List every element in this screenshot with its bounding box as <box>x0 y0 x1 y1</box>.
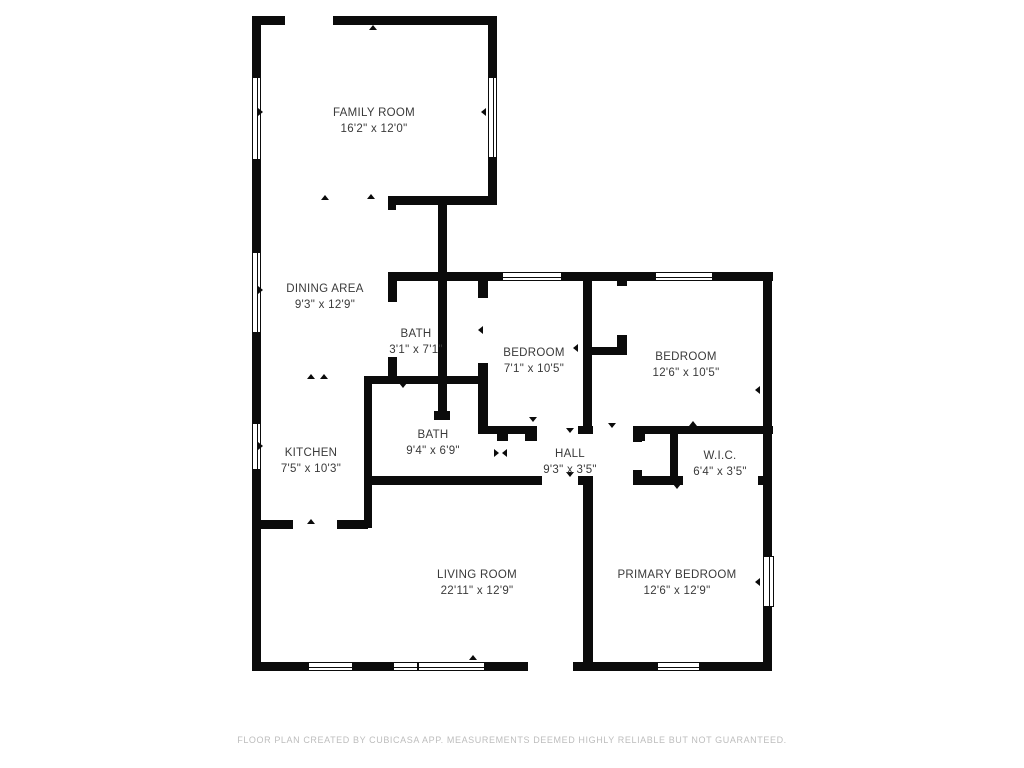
opening-marker-left <box>481 108 486 116</box>
window-pane-line <box>394 667 417 668</box>
window-pane-line <box>419 667 484 668</box>
room-name: W.I.C. <box>693 448 747 464</box>
wall-segment <box>388 196 396 210</box>
room-label: BEDROOM12'6" x 10'5" <box>653 349 720 381</box>
room-dimensions: 12'6" x 10'5" <box>653 365 720 381</box>
wall-segment <box>364 376 480 384</box>
window-symbol <box>418 662 485 671</box>
window-symbol <box>502 272 562 281</box>
opening-marker-down <box>399 383 407 388</box>
opening-marker-up <box>367 194 375 199</box>
opening-marker-left <box>583 588 588 596</box>
wall-segment <box>478 281 488 298</box>
wall-segment <box>633 426 773 434</box>
wall-segment <box>364 376 372 528</box>
wall-segment <box>388 281 397 302</box>
opening-marker-down <box>529 417 537 422</box>
wall-segment <box>252 333 261 423</box>
opening-marker-left <box>573 344 578 352</box>
wall-segment <box>617 335 627 347</box>
wall-segment <box>364 476 542 485</box>
wall-segment <box>763 272 772 556</box>
room-name: KITCHEN <box>281 445 341 461</box>
room-label: BATH9'4" x 6'9" <box>406 427 460 459</box>
room-dimensions: 22'11" x 12'9" <box>437 583 517 599</box>
wall-segment <box>497 434 508 441</box>
wall-segment <box>525 434 537 441</box>
room-label: LIVING ROOM22'11" x 12'9" <box>437 567 517 599</box>
window-pane-line <box>309 667 352 668</box>
wall-segment <box>478 363 488 434</box>
wall-segment <box>353 662 393 671</box>
wall-segment <box>485 662 528 671</box>
wall-segment <box>583 476 593 671</box>
room-name: BEDROOM <box>503 345 565 361</box>
window-symbol <box>252 77 261 160</box>
room-name: PRIMARY BEDROOM <box>617 567 736 583</box>
room-label: BATH3'1" x 7'1" <box>389 326 443 358</box>
room-label: HALL9'3" x 3'5" <box>543 446 597 478</box>
room-dimensions: 9'3" x 12'9" <box>286 297 363 313</box>
window-symbol <box>393 662 418 671</box>
room-dimensions: 7'1" x 10'5" <box>503 361 565 377</box>
wall-segment <box>583 276 592 434</box>
room-label: BEDROOM7'1" x 10'5" <box>503 345 565 377</box>
window-symbol <box>308 662 353 671</box>
opening-marker-down <box>608 423 616 428</box>
wall-segment <box>438 196 447 420</box>
opening-marker-up <box>469 655 477 660</box>
opening-marker-left <box>478 326 483 334</box>
opening-marker-right <box>258 108 263 116</box>
opening-marker-down <box>566 428 574 433</box>
opening-marker-up <box>307 374 315 379</box>
wall-segment <box>434 411 450 420</box>
room-dimensions: 16'2" x 12'0" <box>333 121 415 137</box>
wall-segment <box>488 158 497 205</box>
window-symbol <box>657 662 700 671</box>
opening-marker-up <box>320 374 328 379</box>
opening-marker-up <box>689 421 697 426</box>
opening-marker-left <box>755 386 760 394</box>
window-pane-line <box>769 557 770 606</box>
room-label: DINING AREA9'3" x 12'9" <box>286 281 363 313</box>
window-pane-line <box>257 78 258 159</box>
opening-marker-up <box>321 195 329 200</box>
wall-segment <box>633 426 642 442</box>
wall-segment <box>562 272 655 281</box>
room-label: PRIMARY BEDROOM12'6" x 12'9" <box>617 567 736 599</box>
wall-segment <box>670 430 678 485</box>
window-pane-line <box>503 277 561 278</box>
opening-marker-up <box>307 519 315 524</box>
room-label: W.I.C.6'4" x 3'5" <box>693 448 747 480</box>
room-dimensions: 9'3" x 3'5" <box>543 462 597 478</box>
floor-plan-page: FAMILY ROOM16'2" x 12'0"DINING AREA9'3" … <box>0 0 1024 768</box>
room-dimensions: 12'6" x 12'9" <box>617 583 736 599</box>
opening-marker-left <box>502 449 507 457</box>
opening-marker-right <box>258 286 263 294</box>
opening-marker-right <box>258 442 263 450</box>
room-name: BATH <box>389 326 443 342</box>
wall-segment <box>333 16 497 25</box>
room-name: HALL <box>543 446 597 462</box>
wall-segment <box>763 607 772 671</box>
room-name: LIVING ROOM <box>437 567 517 583</box>
wall-segment <box>256 520 293 529</box>
room-dimensions: 6'4" x 3'5" <box>693 464 747 480</box>
room-dimensions: 3'1" x 7'1" <box>389 342 443 358</box>
room-dimensions: 9'4" x 6'9" <box>406 443 460 459</box>
wall-segment <box>592 347 627 355</box>
window-pane-line <box>656 277 712 278</box>
window-pane-line <box>658 667 699 668</box>
room-dimensions: 7'5" x 10'3" <box>281 461 341 477</box>
wall-segment <box>633 470 642 485</box>
room-name: DINING AREA <box>286 281 363 297</box>
wall-segment <box>488 16 497 77</box>
window-symbol <box>763 556 774 607</box>
room-name: BEDROOM <box>653 349 720 365</box>
wall-segment <box>388 357 397 384</box>
opening-marker-left <box>755 578 760 586</box>
window-pane-line <box>493 78 494 157</box>
opening-marker-up <box>369 25 377 30</box>
wall-segment <box>252 470 261 662</box>
opening-marker-down <box>673 484 681 489</box>
room-label: FAMILY ROOM16'2" x 12'0" <box>333 105 415 137</box>
wall-segment <box>252 160 261 252</box>
opening-marker-right <box>494 449 499 457</box>
window-symbol <box>488 77 497 158</box>
room-name: BATH <box>406 427 460 443</box>
wall-segment <box>700 662 772 671</box>
window-symbol <box>655 272 713 281</box>
wall-segment <box>252 16 261 77</box>
wall-segment <box>617 278 627 286</box>
footer-disclaimer: FLOOR PLAN CREATED BY CUBICASA APP. MEAS… <box>0 735 1024 745</box>
room-name: FAMILY ROOM <box>333 105 415 121</box>
wall-segment <box>252 662 308 671</box>
room-label: KITCHEN7'5" x 10'3" <box>281 445 341 477</box>
